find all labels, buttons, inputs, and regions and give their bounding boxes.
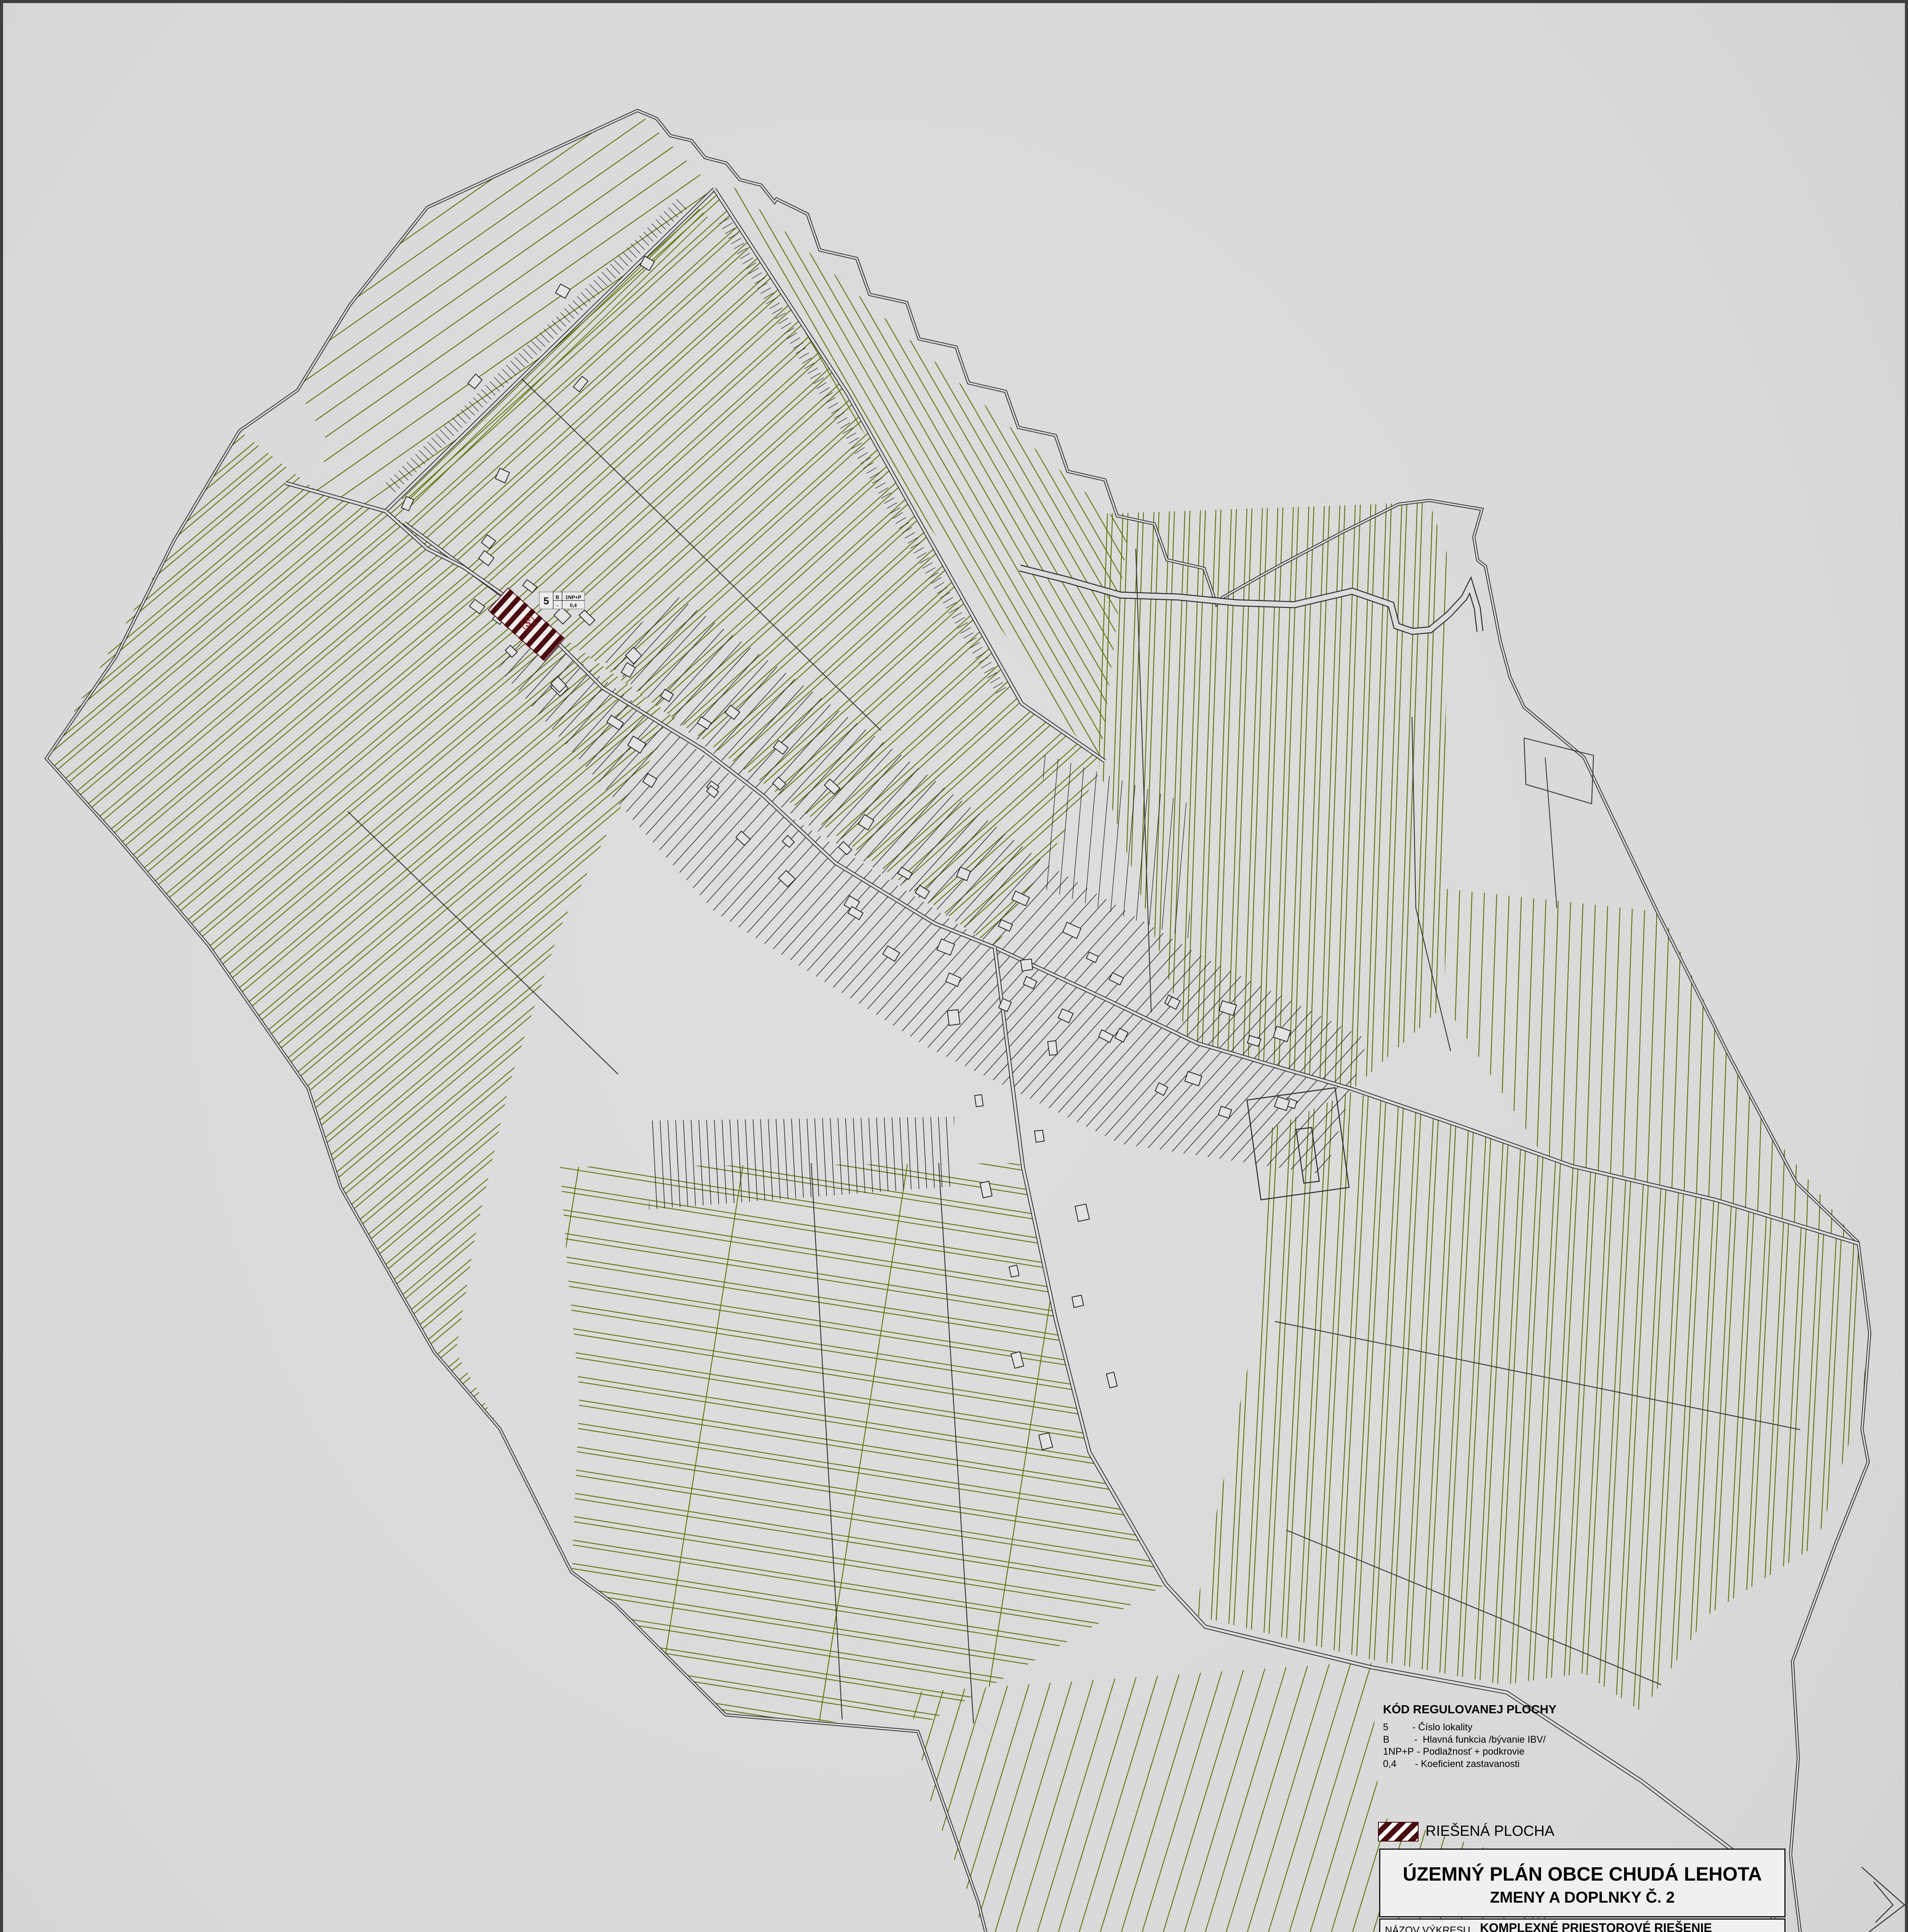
svg-text:-: - — [557, 602, 558, 608]
svg-text:B: B — [556, 594, 559, 600]
svg-text:1NP+P: 1NP+P — [565, 594, 581, 600]
svg-text:5: 5 — [525, 617, 531, 629]
svg-text:5: 5 — [544, 595, 549, 607]
svg-text:0,4: 0,4 — [570, 602, 577, 608]
